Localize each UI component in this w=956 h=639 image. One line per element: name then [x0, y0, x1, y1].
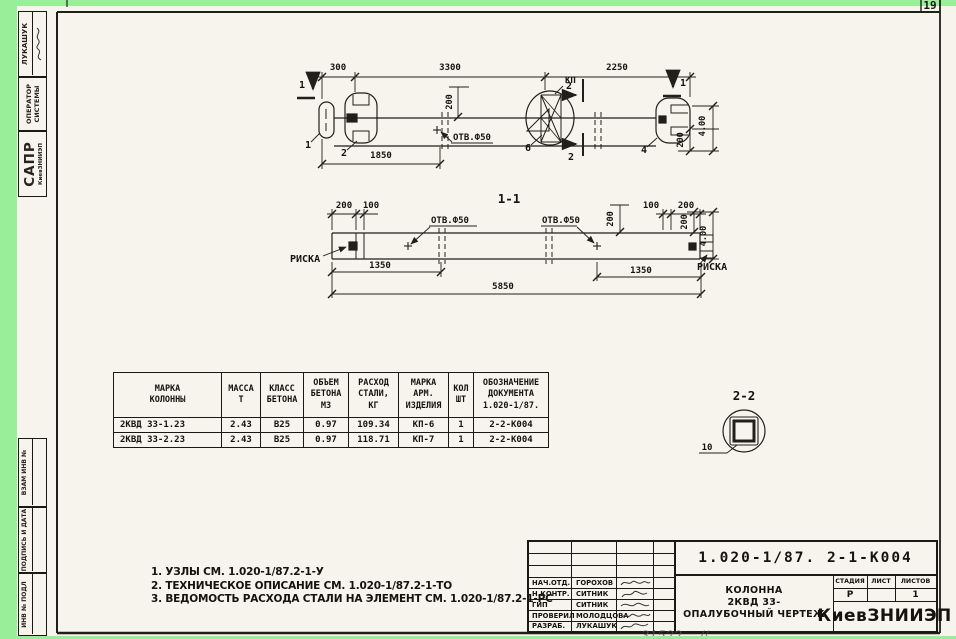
titleblock-signature — [617, 588, 653, 599]
dim-1350-left: 1350 — [369, 261, 391, 271]
table-cell: 118.71 — [349, 433, 399, 447]
hole-label: ОТВ.Ф50 — [453, 133, 491, 143]
table-cell: В25 — [261, 433, 304, 447]
note-line: 3. ВЕДОМОСТЬ РАСХОДА СТАЛИ НА ЭЛЕМЕНТ СМ… — [151, 593, 553, 607]
stamp-operator-line2: СИСТЕМЫ — [33, 85, 41, 122]
dim-1350-right: 1350 — [630, 266, 652, 276]
hole-label-right: ОТВ.Ф50 — [542, 216, 580, 226]
signature-scribble — [619, 589, 651, 599]
table-cell: 2.43 — [222, 433, 261, 447]
stamp-operator-line1: ОПЕРАТОР — [25, 84, 33, 124]
table-cell: В25 — [261, 418, 304, 433]
sheets-value: 1 — [895, 588, 936, 601]
stamp-author-signature — [31, 11, 47, 77]
table-cell: 1 — [449, 433, 474, 447]
titleblock-signature — [617, 610, 653, 621]
section-1-1-title: 1-1 — [498, 191, 521, 206]
organization-name: КиевЗНИИЭП — [833, 601, 936, 631]
table-cell: 2КВД 33-2.23 — [114, 433, 222, 447]
callout-1: 1 — [305, 140, 311, 151]
scanned-drawing-sheet: 19 — [0, 0, 956, 639]
dim-200-hole: 200 — [445, 94, 455, 109]
dim-400-right: 4.00 — [699, 226, 709, 246]
table-cell: 1 — [449, 418, 474, 433]
table-header: МАРКАКОЛОННЫ — [114, 373, 222, 418]
dim-3300: 3300 — [439, 63, 461, 73]
table-cell: КП-6 — [399, 418, 449, 433]
stage-header: СТАДИЯ — [833, 574, 867, 588]
riska-label-right: РИСКА — [697, 262, 727, 273]
titleblock-role: НАЧ.ОТД. — [529, 577, 574, 588]
dim-300: 300 — [330, 63, 346, 73]
section-2-2-title: 2-2 — [733, 388, 756, 403]
dim-100-top-left: 100 — [363, 201, 379, 211]
titleblock-name: СИТНИК — [573, 599, 618, 610]
dim-200-right: 200 — [676, 132, 686, 147]
table-header: КЛАССБЕТОНА — [261, 373, 304, 418]
stamp-org-acronym: САПР — [22, 141, 38, 187]
titleblock-signature — [617, 599, 653, 610]
drawing-title: КОЛОННА 2КВД 33- ОПАЛУБОЧНЫЙ ЧЕРТЕЖ — [675, 574, 833, 631]
signature-scribble — [619, 600, 651, 610]
column-spec-table: МАРКАКОЛОННЫ МАССАТ КЛАССБЕТОНА ОБЪЕМБЕТ… — [113, 372, 549, 448]
stamp-podpis-label: ПОДПИСЬ И ДАТА — [21, 509, 28, 571]
dim-5850: 5850 — [492, 282, 514, 292]
stamp-vzam-label: ВЗАМ ИНВ № — [21, 450, 28, 495]
title-block: НАЧ.ОТД. Н.КОНТР. ГИП ПРОВЕРИЛ РАЗРАБ. Г… — [527, 540, 938, 633]
callout-10: 10 — [702, 443, 713, 453]
titleblock-role: ГИП — [529, 599, 574, 610]
stage-value: Р — [833, 588, 867, 601]
table-header: КОЛШТ — [449, 373, 474, 418]
table-header: МАРКААРМ.ИЗДЕЛИЯ — [399, 373, 449, 418]
table-header: ОБОЗНАЧЕНИЕДОКУМЕНТА1.020-1/87. — [474, 373, 548, 418]
dim-1850: 1850 — [370, 151, 392, 161]
section-mark-1-right: 1 — [680, 78, 686, 89]
sheet-corner-number: 19 — [923, 0, 936, 12]
table-cell: 2КВД 33-1.23 — [114, 418, 222, 433]
table-header: ОБЪЕМБЕТОНАМ3 — [304, 373, 349, 418]
section-mark-2-bottom: 2 — [568, 152, 574, 163]
table-header: МАССАТ — [222, 373, 261, 418]
dim-400-right: 4.00 — [698, 116, 708, 136]
dim-200-top-left: 200 — [336, 201, 352, 211]
table-cell: 2-2-К004 — [474, 433, 548, 447]
titleblock-name: СИТНИК — [573, 588, 618, 599]
dim-2250: 2250 — [606, 63, 628, 73]
dim-100-top-right: 100 — [643, 201, 659, 211]
titleblock-name: МОЛОДЦОВА — [573, 610, 618, 621]
sheets-header: ЛИСТОВ — [895, 574, 936, 588]
callout-6: 6 — [525, 143, 531, 154]
section-mark-2-top: 2 — [566, 81, 572, 92]
dim-200-right: 200 — [680, 214, 690, 229]
stamp-org-name: КиевЗНИИЭП — [38, 143, 44, 185]
titleblock-role: РАЗРАБ. — [529, 621, 574, 631]
stamp-author-name: ЛУКАШУК — [21, 23, 29, 65]
sheet-value — [867, 588, 895, 601]
signature-scribble — [619, 611, 651, 621]
dim-200-top-right: 200 — [678, 201, 694, 211]
note-line: 1. УЗЛЫ СМ. 1.020-1/87.2-1-У — [151, 566, 553, 580]
dim-200-mid: 200 — [606, 211, 616, 226]
table-cell: 2.43 — [222, 418, 261, 433]
notes-list: 1. УЗЛЫ СМ. 1.020-1/87.2-1-У 2. ТЕХНИЧЕС… — [151, 566, 553, 607]
titleblock-role: Н.КОНТР. — [529, 588, 574, 599]
section-mark-1-left: 1 — [299, 80, 305, 91]
titleblock-role: ПРОВЕРИЛ — [529, 610, 574, 621]
riska-label-left: РИСКА — [290, 254, 320, 265]
table-cell: 109.34 — [349, 418, 399, 433]
titleblock-signature — [617, 577, 653, 588]
titleblock-name: ГОРОХОВ — [573, 577, 618, 588]
table-cell: 2-2-К004 — [474, 418, 548, 433]
table-cell: КП-7 — [399, 433, 449, 447]
table-header: РАСХОДСТАЛИ,КГ — [349, 373, 399, 418]
table-cell: 0.97 — [304, 418, 349, 433]
note-line: 2. ТЕХНИЧЕСКОЕ ОПИСАНИЕ СМ. 1.020-1/87.2… — [151, 580, 553, 594]
signature-scribble — [33, 26, 45, 62]
callout-4: 4 — [641, 145, 647, 156]
signature-scribble — [619, 578, 651, 588]
table-cell: 0.97 — [304, 433, 349, 447]
callout-2: 2 — [341, 148, 347, 159]
hole-label-left: ОТВ.Ф50 — [431, 216, 469, 226]
titleblock-name: ЛУКАШУК — [573, 621, 618, 631]
document-number: 1.020-1/87. 2-1-К004 — [675, 542, 936, 574]
stamp-inv-label: ИНВ № ПОДЛ — [21, 581, 28, 627]
sheet-header: ЛИСТ — [867, 574, 895, 588]
